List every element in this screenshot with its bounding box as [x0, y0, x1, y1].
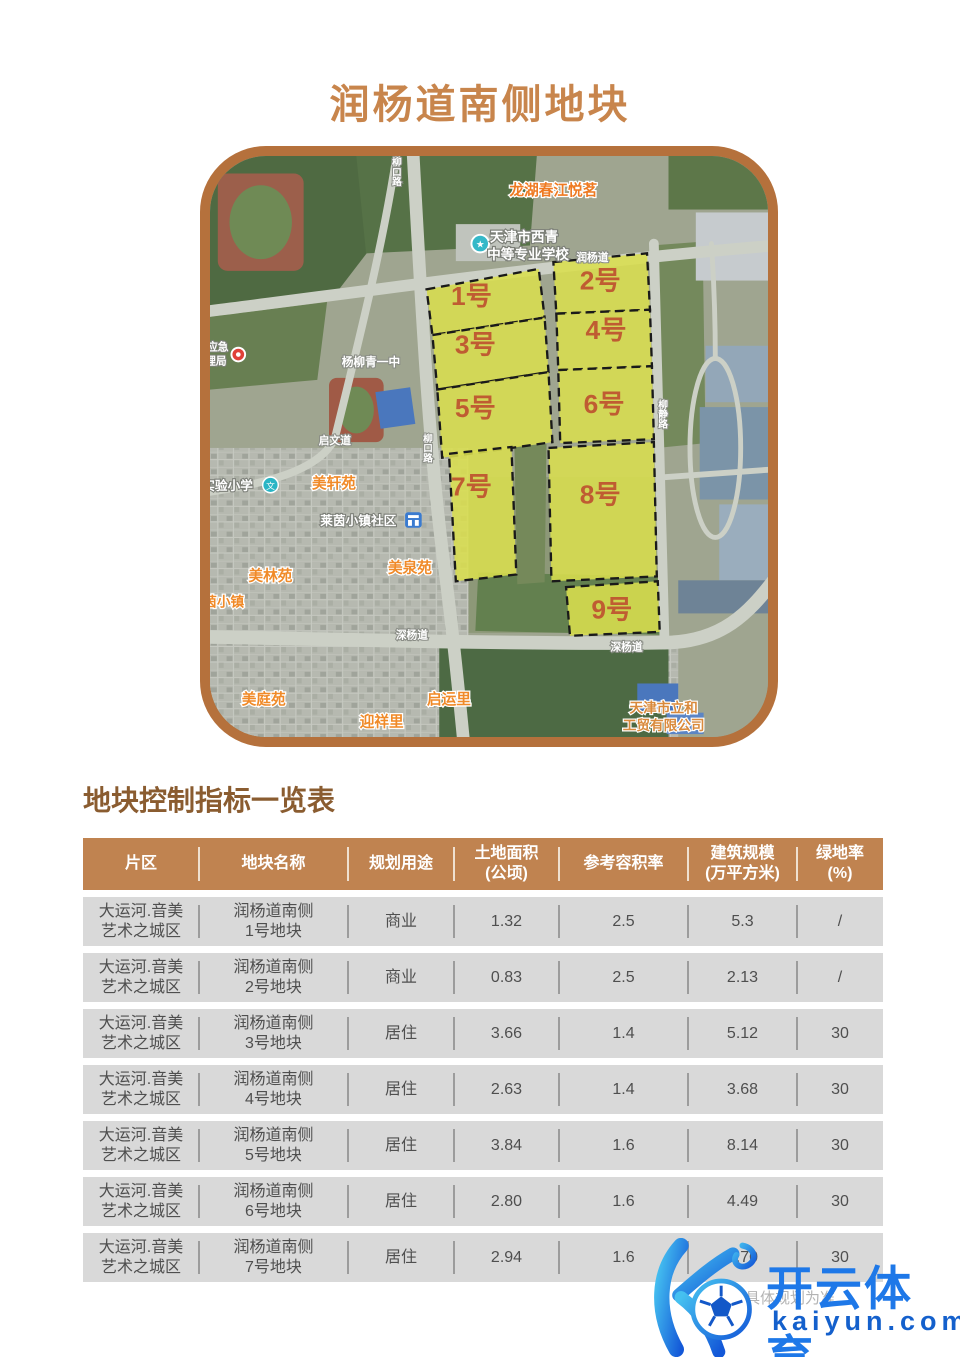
cell-use: 居住: [348, 1177, 454, 1226]
label-meilin: 美林苑: [249, 566, 293, 584]
label-emergency-line2: 理局: [210, 355, 227, 367]
label-yingxiang: 迎祥里: [360, 712, 404, 730]
plot-2-label: 2号: [580, 265, 621, 295]
cell-far: 1.4: [559, 1065, 688, 1114]
label-qiyun: 启运里: [427, 690, 471, 708]
cell-use: 居住: [348, 1121, 454, 1170]
label-company-line2: 工贸有限公司: [623, 717, 705, 733]
cell-land-area: 2.80: [454, 1177, 559, 1226]
cell-land-area: 3.84: [454, 1121, 559, 1170]
label-primary-school: 实验小学: [210, 478, 253, 493]
cell-plot-name: 润杨道南侧 3号地块: [199, 1009, 348, 1058]
label-yinxiaozhen: 茵小镇: [210, 594, 244, 610]
cell-use: 商业: [348, 897, 454, 946]
header-far: 参考容积率: [559, 838, 688, 890]
plot-9-label: 9号: [591, 594, 632, 624]
cell-green-rate: /: [797, 897, 883, 946]
plot-1-label: 1号: [451, 281, 492, 311]
cell-building-scale: 3.68: [688, 1065, 797, 1114]
cell-use: 商业: [348, 953, 454, 1002]
plot-5-label: 5号: [455, 393, 496, 423]
plot-8: [549, 442, 657, 581]
cell-land-area: 2.94: [454, 1233, 559, 1282]
plot-8-label: 8号: [580, 479, 621, 509]
label-school-line2: 中等专业学校: [487, 246, 569, 262]
header-district: 片区: [83, 838, 199, 890]
cell-district: 大运河.音美 艺术之城区: [83, 1121, 199, 1170]
cell-far: 1.6: [559, 1121, 688, 1170]
label-emergency-line1: 应急: [210, 341, 229, 354]
header-building-scale: 建筑规模 (万平方米): [688, 838, 797, 890]
label-longhu: 龙湖春江悦茗: [509, 181, 598, 199]
cell-far: 2.5: [559, 953, 688, 1002]
satellite-map: 1号 2号 3号 4号 5号 6号 7号 8号 9号 ★ 文: [200, 146, 778, 747]
cell-far: 2.5: [559, 897, 688, 946]
header-use: 规划用途: [348, 838, 454, 890]
plot-7: [449, 447, 516, 581]
cell-district: 大运河.音美 艺术之城区: [83, 1177, 199, 1226]
label-yangliuqing: 杨柳青一中: [342, 355, 401, 369]
cell-plot-name: 润杨道南侧 1号地块: [199, 897, 348, 946]
cell-far: 1.4: [559, 1009, 688, 1058]
school-icon-glyph: ★: [476, 239, 485, 250]
label-south-road-a: 深杨道: [396, 629, 428, 642]
cell-green-rate: 30: [797, 1065, 883, 1114]
cell-building-scale: 4.49: [688, 1177, 797, 1226]
cell-green-rate: 30: [797, 1177, 883, 1226]
cell-district: 大运河.音美 艺术之城区: [83, 1065, 199, 1114]
label-liujing-road: 柳静路: [656, 398, 668, 429]
map-canvas: 1号 2号 3号 4号 5号 6号 7号 8号 9号 ★ 文: [210, 156, 768, 737]
label-liukou-road-a: 柳口路: [390, 156, 402, 187]
label-south-road-b: 深杨道: [610, 640, 642, 653]
page: 润杨道南侧地块: [0, 0, 960, 1357]
cell-plot-name: 润杨道南侧 5号地块: [199, 1121, 348, 1170]
header-land-area: 土地面积 (公顷): [454, 838, 559, 890]
header-green-rate: 绿地率 (%): [797, 838, 883, 890]
community-icon: [405, 512, 422, 528]
cell-green-rate: /: [797, 953, 883, 1002]
label-meixuan: 美轩苑: [312, 474, 356, 492]
cell-land-area: 0.83: [454, 953, 559, 1002]
kaiyun-logo-icon: [648, 1238, 766, 1357]
label-meiquan: 美泉苑: [388, 559, 432, 577]
header-plot-name: 地块名称: [199, 838, 348, 890]
cell-plot-name: 润杨道南侧 2号地块: [199, 953, 348, 1002]
table-row: 大运河.音美 艺术之城区 润杨道南侧 6号地块 居住 2.80 1.6 4.49…: [83, 1177, 883, 1226]
cell-plot-name: 润杨道南侧 4号地块: [199, 1065, 348, 1114]
cell-land-area: 1.32: [454, 897, 559, 946]
cell-building-scale: 5.12: [688, 1009, 797, 1058]
section-title: 地块控制指标一览表: [83, 779, 335, 819]
cell-district: 大运河.音美 艺术之城区: [83, 953, 199, 1002]
label-company-line1: 天津市立和: [630, 700, 698, 716]
cell-plot-name: 润杨道南侧 6号地块: [199, 1177, 348, 1226]
plot-4-label: 4号: [586, 315, 627, 345]
label-school-line1: 天津市西青: [490, 229, 559, 245]
cell-land-area: 2.63: [454, 1065, 559, 1114]
cell-building-scale: 8.14: [688, 1121, 797, 1170]
plot-3-label: 3号: [455, 330, 496, 360]
cell-use: 居住: [348, 1233, 454, 1282]
plot-6-label: 6号: [584, 389, 625, 419]
table-header-row: 片区 地块名称 规划用途 土地面积 (公顷) 参考容积率 建筑规模 (万平方米)…: [83, 838, 883, 890]
label-qiwen-road: 启文道: [319, 434, 351, 447]
cell-district: 大运河.音美 艺术之城区: [83, 897, 199, 946]
cell-green-rate: 30: [797, 1121, 883, 1170]
cell-green-rate: 30: [797, 1009, 883, 1058]
label-runyang-road: 润杨道: [576, 251, 608, 264]
watermark-domain: kaiyun.com: [772, 1306, 960, 1337]
label-liukou-road-b: 柳口路: [421, 432, 433, 463]
cell-building-scale: 5.3: [688, 897, 797, 946]
cell-district: 大运河.音美 艺术之城区: [83, 1009, 199, 1058]
emergency-pin-icon: [231, 348, 245, 362]
cell-building-scale: 2.13: [688, 953, 797, 1002]
label-laiyin: 莱茵小镇社区: [320, 513, 396, 528]
table-row: 大运河.音美 艺术之城区 润杨道南侧 4号地块 居住 2.63 1.4 3.68…: [83, 1065, 883, 1114]
watermark: 开云体育 kaiyun.com: [648, 1238, 960, 1357]
page-title: 润杨道南侧地块: [0, 72, 960, 130]
cell-district: 大运河.音美 艺术之城区: [83, 1233, 199, 1282]
label-meiting: 美庭苑: [242, 690, 286, 708]
plot-7-label: 7号: [451, 472, 492, 502]
watermark-brand: 开云体育: [766, 1250, 960, 1357]
cell-plot-name: 润杨道南侧 7号地块: [199, 1233, 348, 1282]
table-row: 大运河.音美 艺术之城区 润杨道南侧 5号地块 居住 3.84 1.6 8.14…: [83, 1121, 883, 1170]
primary-school-icon-glyph: 文: [266, 480, 275, 491]
cell-land-area: 3.66: [454, 1009, 559, 1058]
table-row: 大运河.音美 艺术之城区 润杨道南侧 2号地块 商业 0.83 2.5 2.13…: [83, 953, 883, 1002]
cell-use: 居住: [348, 1065, 454, 1114]
indicator-table: 片区 地块名称 规划用途 土地面积 (公顷) 参考容积率 建筑规模 (万平方米)…: [83, 838, 883, 1282]
cell-use: 居住: [348, 1009, 454, 1058]
cell-far: 1.6: [559, 1177, 688, 1226]
table-row: 大运河.音美 艺术之城区 润杨道南侧 3号地块 居住 3.66 1.4 5.12…: [83, 1009, 883, 1058]
table-row: 大运河.音美 艺术之城区 润杨道南侧 1号地块 商业 1.32 2.5 5.3 …: [83, 897, 883, 946]
